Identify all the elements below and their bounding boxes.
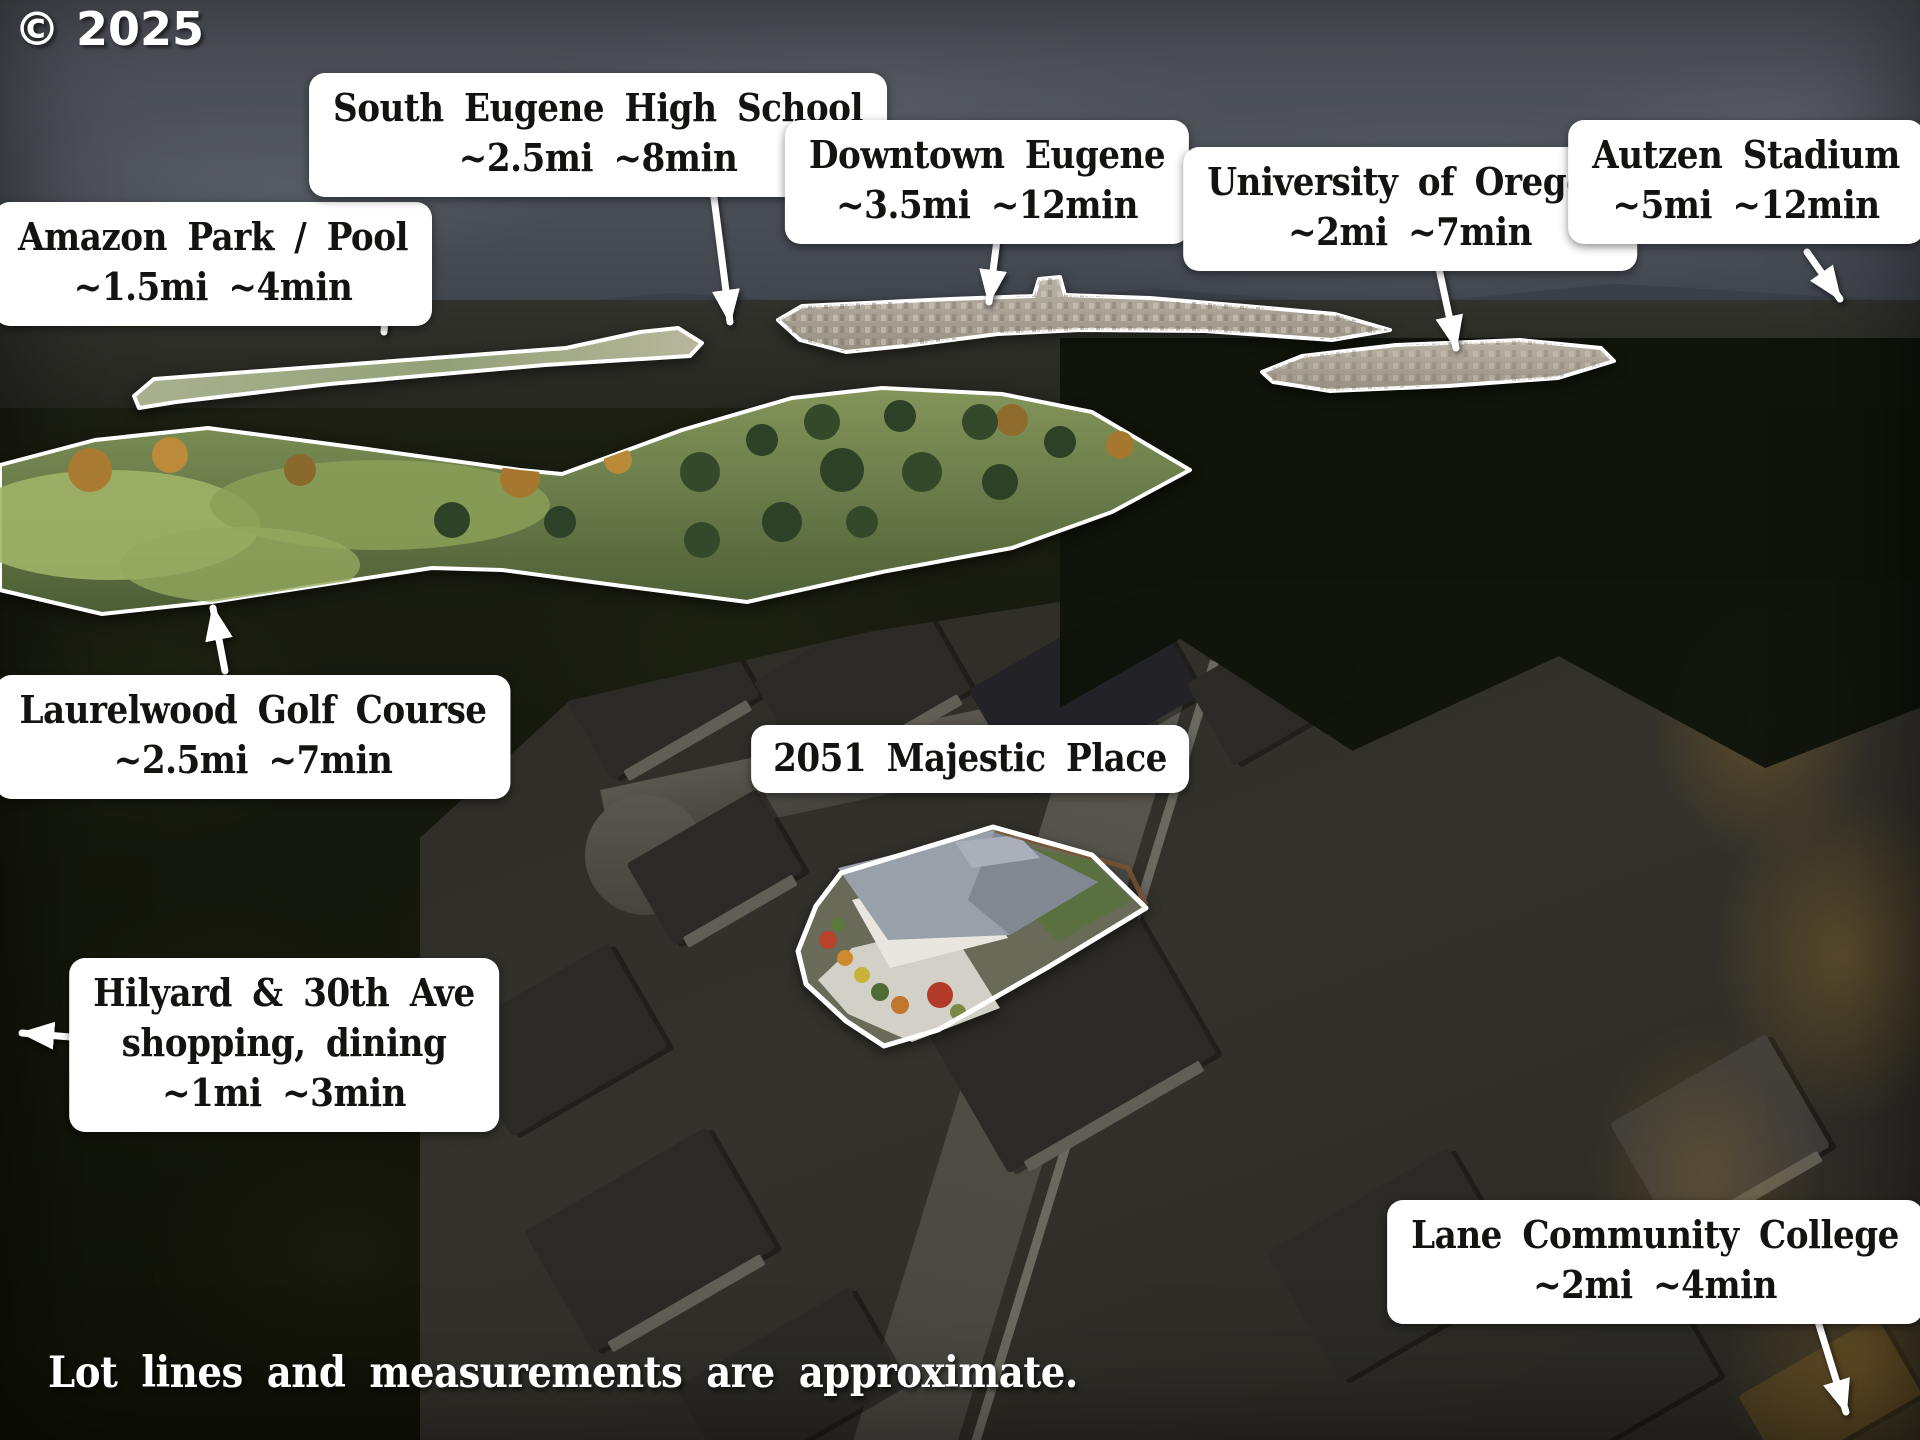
label-subtitle: shopping, dining (93, 1018, 475, 1068)
annotated-aerial-photo: Amazon Park / Pool ~1.5mi ~4min South Eu… (0, 0, 1920, 1440)
label-distance: ~2.5mi ~8min (333, 133, 863, 183)
label-title: Autzen Stadium (1592, 130, 1900, 180)
label-autzen-stadium: Autzen Stadium ~5mi ~12min (1568, 120, 1920, 244)
label-title: Lane Community College (1411, 1210, 1899, 1260)
label-amazon-park: Amazon Park / Pool ~1.5mi ~4min (0, 202, 432, 326)
disclaimer-text: Lot lines and measurements are approxima… (48, 1348, 1078, 1398)
label-title: Hilyard & 30th Ave (93, 968, 475, 1018)
label-distance: ~1mi ~3min (93, 1068, 475, 1118)
copyright-watermark: © 2025 (14, 2, 204, 56)
label-distance: ~2mi ~4min (1411, 1260, 1899, 1310)
label-downtown-eugene: Downtown Eugene ~3.5mi ~12min (785, 120, 1189, 244)
house-roof (524, 1127, 776, 1353)
label-title: University of Oregon (1207, 157, 1613, 207)
label-distance: ~2.5mi ~7min (19, 735, 486, 785)
label-hilyard-30th: Hilyard & 30th Ave shopping, dining ~1mi… (69, 958, 499, 1132)
label-distance: ~5mi ~12min (1592, 180, 1900, 230)
label-lane-community-college: Lane Community College ~2mi ~4min (1387, 1200, 1920, 1324)
label-title: Amazon Park / Pool (18, 212, 408, 262)
label-distance: ~2mi ~7min (1207, 207, 1613, 257)
label-property-address: 2051 Majestic Place (751, 725, 1189, 793)
label-distance: ~1.5mi ~4min (18, 262, 408, 312)
label-distance: ~3.5mi ~12min (809, 180, 1165, 230)
label-title: Laurelwood Golf Course (19, 685, 486, 735)
label-title: South Eugene High School (333, 83, 863, 133)
label-title: 2051 Majestic Place (773, 733, 1167, 783)
label-laurelwood-golf: Laurelwood Golf Course ~2.5mi ~7min (0, 675, 511, 799)
label-title: Downtown Eugene (809, 130, 1165, 180)
